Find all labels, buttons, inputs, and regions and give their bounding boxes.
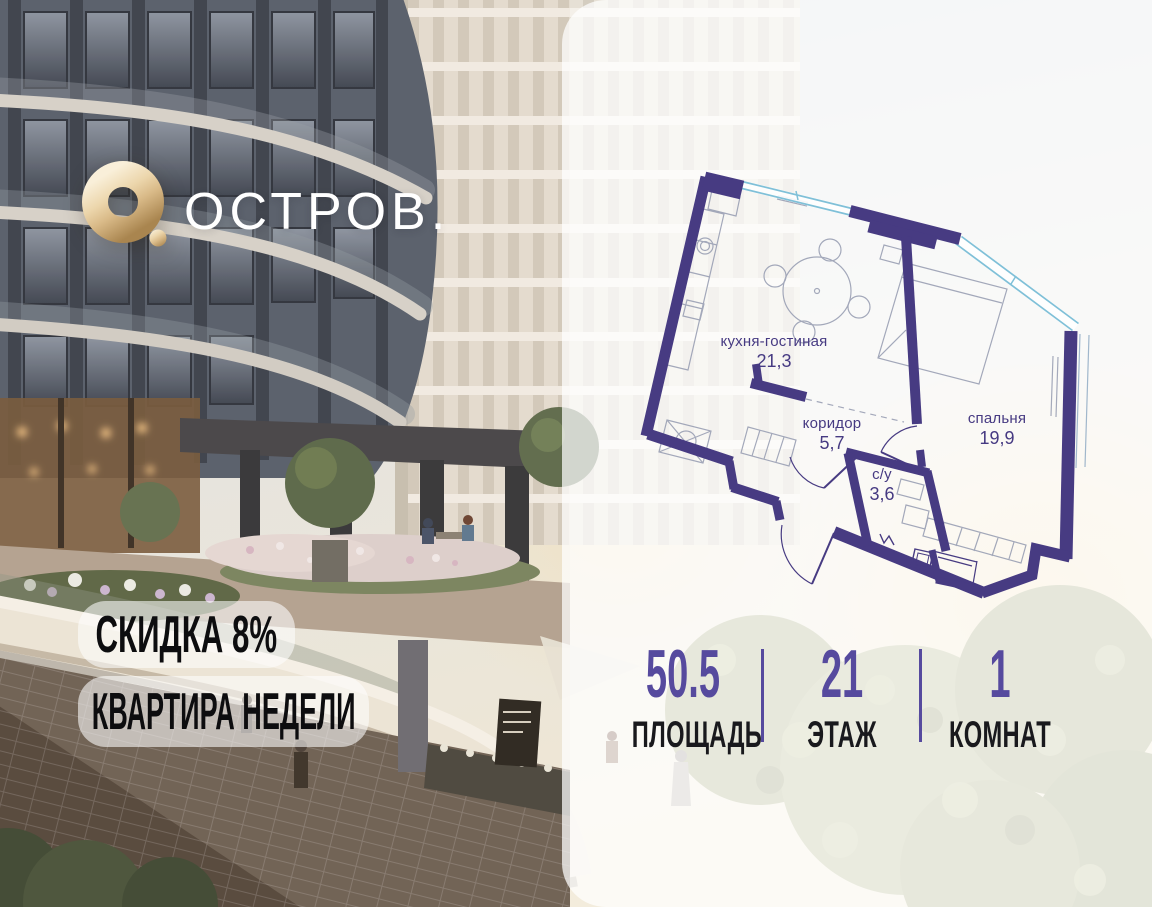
stat-area-value: 50.5 [638,642,728,707]
discount-badge-label: СКИДКА 8% [96,609,278,661]
room-name: коридор [803,415,862,432]
promo-banner: кухня-гостиная 21,3 коридор 5,7 с/у 3,6 … [0,0,1152,907]
room-area: 5,7 [803,433,862,454]
stat-rooms-value: 1 [955,642,1045,707]
apartment-week-label: КВАРТИРА НЕДЕЛИ [92,686,356,738]
stat-rooms-label: КОМНАТ [949,716,1051,753]
discount-badge: СКИДКА 8% [78,601,295,668]
room-name: с/у [869,466,894,483]
room-label-bathroom: с/у 3,6 [869,466,894,505]
floor-plan [0,0,1152,907]
room-label-bedroom: спальня 19,9 [968,410,1026,449]
stat-rooms: 1 КОМНАТ [920,642,1080,753]
room-area: 3,6 [869,484,894,505]
room-label-kitchen-living: кухня-гостиная 21,3 [721,333,828,372]
room-name: кухня-гостиная [721,333,828,350]
room-area: 19,9 [968,428,1026,449]
room-area: 21,3 [721,351,828,372]
room-label-corridor: коридор 5,7 [803,415,862,454]
stat-floor-label: ЭТАЖ [791,716,892,753]
stat-floor: 21 ЭТАЖ [763,642,921,753]
stat-area: 50.5 ПЛОЩАДЬ [603,642,763,753]
logo-mark-icon [80,158,170,250]
apartment-week-badge: КВАРТИРА НЕДЕЛИ [78,676,369,747]
stat-floor-value: 21 [798,642,886,707]
logo-wordmark: ОСТРОВ. [184,182,450,242]
room-name: спальня [968,410,1026,427]
stat-area-label: ПЛОЩАДЬ [632,716,734,753]
